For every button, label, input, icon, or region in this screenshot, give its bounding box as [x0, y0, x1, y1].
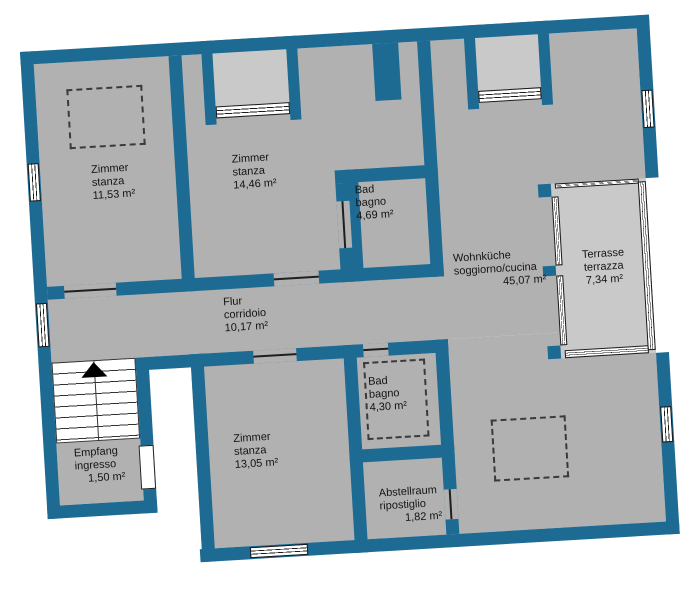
room-name-de: Zimmer — [231, 151, 275, 167]
room-label-bad1: Bad bagno 4,69 m² — [354, 182, 394, 223]
entrance-door — [139, 445, 157, 490]
dashed-outline-livingroom — [491, 415, 570, 481]
room-label-flur: Flur corridoio 10,17 m² — [223, 294, 269, 336]
floor-plan: Zimmer stanza 11,53 m² Zimmer stanza 14,… — [20, 15, 681, 586]
room-label-zimmer3: Zimmer stanza 13,05 m² — [233, 430, 279, 472]
room-label-zimmer1: Zimmer stanza 11,53 m² — [91, 161, 136, 202]
room-area: 11,53 m² — [92, 187, 135, 203]
room-label-abstellraum: Abstellraum ripostiglio 1,82 m² — [378, 484, 442, 527]
dashed-outline-zimmer1 — [66, 85, 145, 149]
room-label-terrasse: Terrasse terrazza 7,34 m² — [560, 245, 648, 289]
window-right-upper — [641, 90, 654, 129]
room-area: 4,69 m² — [356, 208, 394, 223]
room-area: 13,05 m² — [235, 456, 279, 472]
wall-terrace-stub-top — [538, 184, 552, 198]
room-area: 4,30 m² — [369, 400, 407, 415]
floor-plan-page: { "plan_title": "floor-plan", "colors": … — [0, 0, 698, 600]
room-area: 10,17 m² — [224, 320, 268, 336]
room-label-wohnkueche: Wohnküche soggiorno/cucina 45,07 m² — [453, 247, 547, 291]
room-name-de: Zimmer — [91, 161, 134, 177]
room-label-zimmer2: Zimmer stanza 14,46 m² — [231, 151, 277, 193]
wall-top-pier — [372, 43, 401, 101]
staircase — [51, 358, 140, 444]
room-area: 14,46 m² — [233, 177, 277, 193]
window-right-lower — [660, 406, 673, 443]
room-label-bad2: Bad bagno 4,30 m² — [368, 374, 408, 415]
window-left-upper — [28, 163, 41, 202]
stairs-direction-arrow — [81, 361, 108, 378]
wall-terrace-stub-bottom — [547, 345, 561, 359]
room-name-de: Zimmer — [233, 430, 277, 446]
room-label-empfang: Empfang ingresso 1,50 m² — [74, 445, 126, 487]
